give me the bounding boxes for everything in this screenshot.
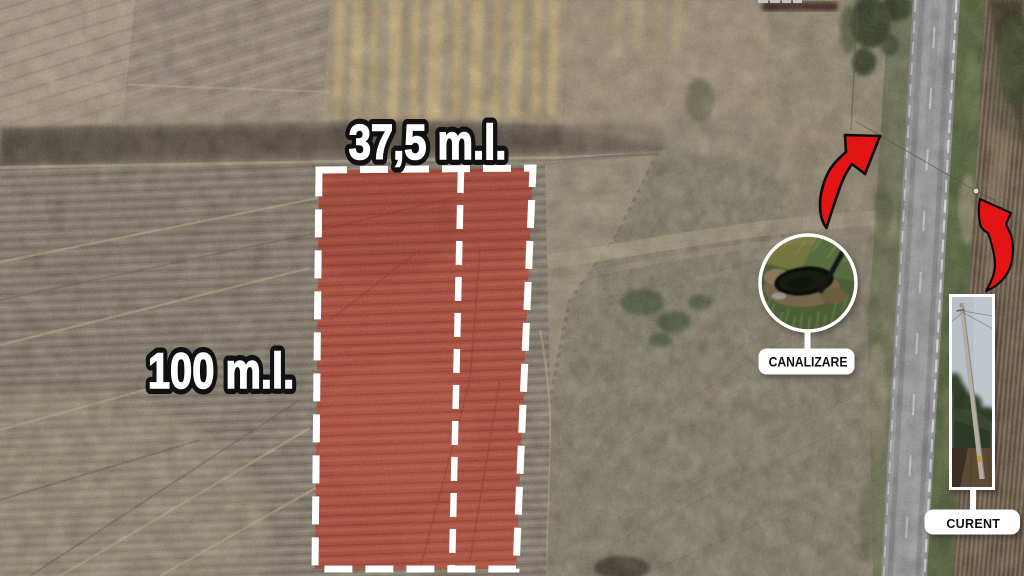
- svg-text:37,5 m.l.: 37,5 m.l.: [349, 116, 507, 170]
- svg-text:CURENT: CURENT: [946, 517, 1000, 531]
- svg-text:100 m.l.: 100 m.l.: [148, 343, 294, 400]
- svg-text:CANALIZARE: CANALIZARE: [769, 354, 848, 370]
